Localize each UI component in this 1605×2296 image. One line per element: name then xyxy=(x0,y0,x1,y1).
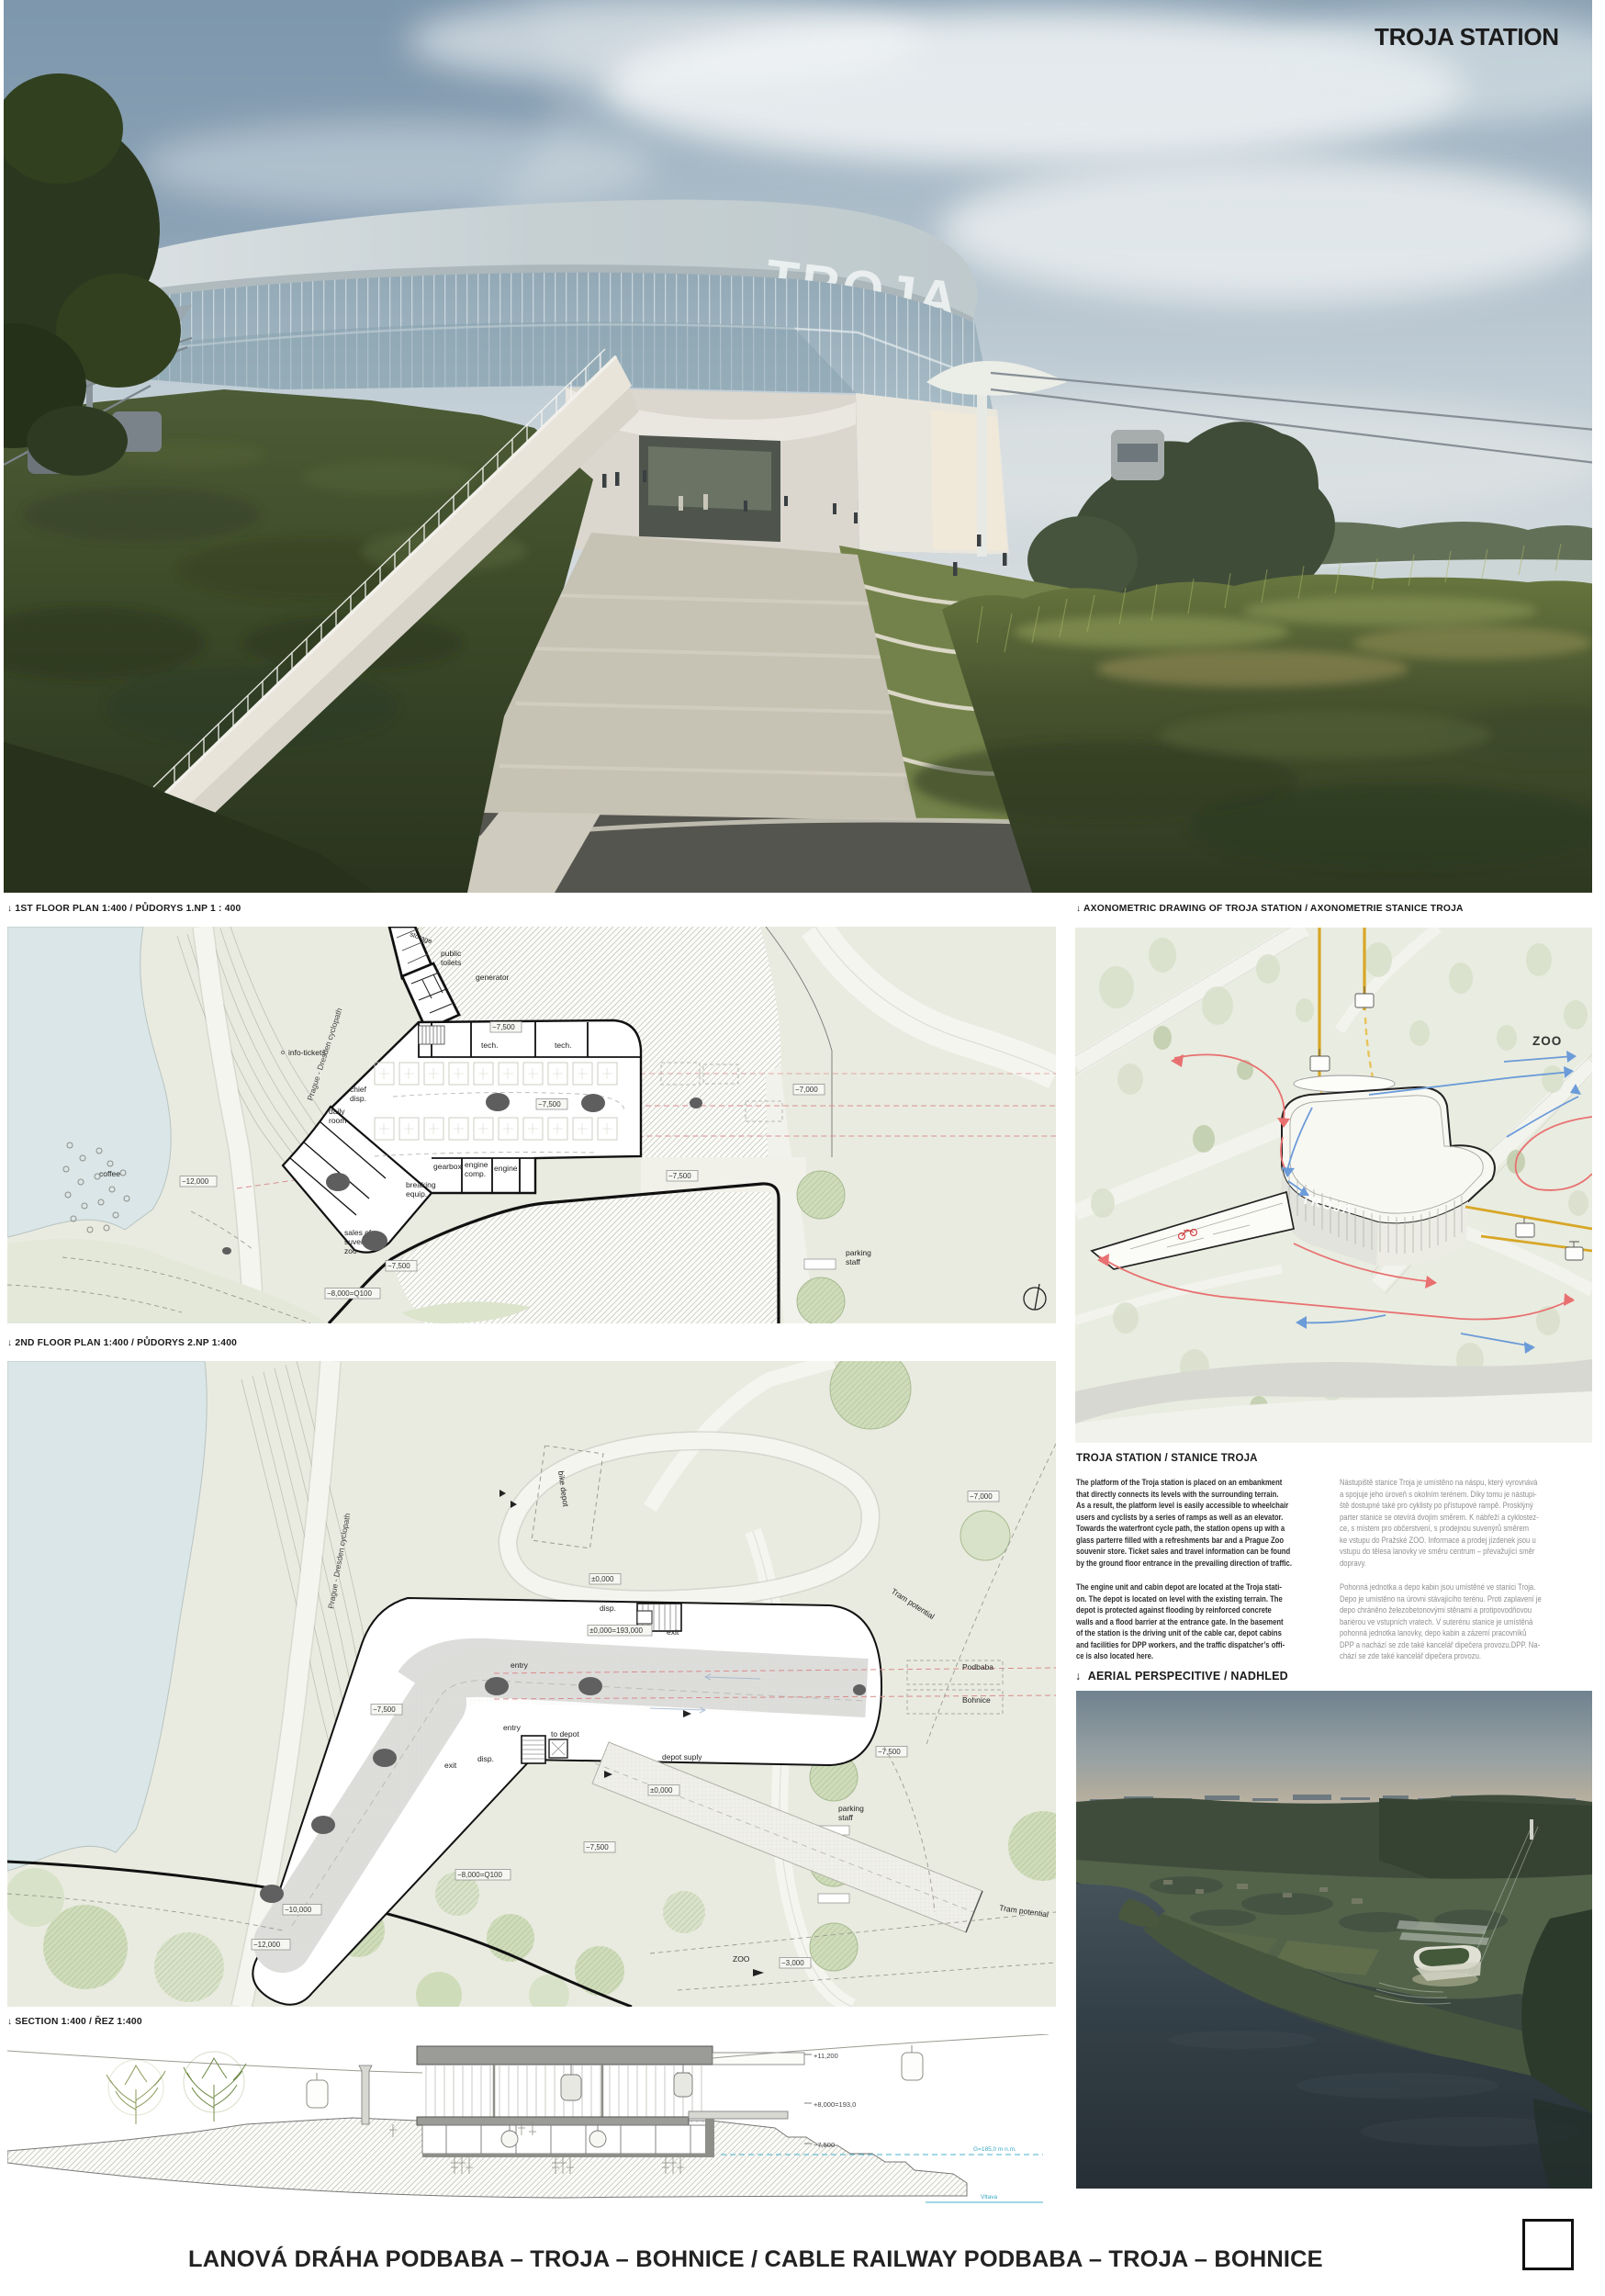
svg-text:±0,000: ±0,000 xyxy=(650,1786,673,1795)
svg-text:staff: staff xyxy=(838,1813,854,1822)
svg-text:+8,000=193,0: +8,000=193,0 xyxy=(814,2100,856,2109)
svg-text:−12,000: −12,000 xyxy=(253,1941,281,1949)
svg-text:−7,500: −7,500 xyxy=(878,1748,901,1756)
svg-text:−7,500: −7,500 xyxy=(492,1023,515,1031)
svg-text:tech.: tech. xyxy=(555,1041,571,1050)
svg-text:−10,000: −10,000 xyxy=(285,1906,312,1914)
svg-text:staff: staff xyxy=(846,1257,861,1266)
svg-text:gearbox: gearbox xyxy=(433,1162,462,1171)
svg-text:room: room xyxy=(329,1116,346,1125)
svg-text:to depot: to depot xyxy=(551,1729,579,1739)
svg-text:Vltava: Vltava xyxy=(981,2194,997,2200)
svg-text:engine: engine xyxy=(494,1164,518,1173)
svg-text:−7,500: −7,500 xyxy=(373,1705,396,1714)
svg-text:info-tickets: info-tickets xyxy=(288,1048,326,1057)
svg-text:+11,200: +11,200 xyxy=(814,2052,838,2060)
svg-text:−3,000: −3,000 xyxy=(781,1959,804,1967)
svg-text:disp.: disp. xyxy=(477,1754,494,1763)
svg-text:public: public xyxy=(441,949,462,958)
svg-text:toilets: toilets xyxy=(441,958,461,967)
svg-text:entry: entry xyxy=(511,1660,529,1670)
svg-text:−8,000=Q100: −8,000=Q100 xyxy=(327,1289,372,1298)
svg-text:ZOO: ZOO xyxy=(733,1954,750,1964)
svg-text:Podbaba: Podbaba xyxy=(962,1662,993,1671)
svg-text:−7,500: −7,500 xyxy=(586,1843,609,1851)
svg-text:±0,000: ±0,000 xyxy=(591,1575,614,1583)
svg-text:−7,500: −7,500 xyxy=(387,1262,410,1270)
svg-text:Bohnice: Bohnice xyxy=(962,1695,991,1705)
svg-text:exit: exit xyxy=(444,1761,457,1770)
svg-text:engine: engine xyxy=(465,1160,488,1169)
svg-text:−7,000: −7,000 xyxy=(795,1086,818,1094)
svg-text:chief: chief xyxy=(350,1085,367,1094)
svg-text:−7,500: −7,500 xyxy=(668,1172,691,1180)
svg-text:depot suply: depot suply xyxy=(662,1752,702,1761)
svg-text:entry: entry xyxy=(503,1723,522,1732)
svg-text:tech.: tech. xyxy=(481,1041,498,1050)
svg-text:breaking: breaking xyxy=(406,1180,436,1189)
svg-text:generator: generator xyxy=(476,973,510,982)
svg-text:coffee: coffee xyxy=(99,1169,120,1178)
svg-text:ZOO: ZOO xyxy=(1532,1034,1562,1048)
svg-text:−12,000: −12,000 xyxy=(182,1177,209,1186)
svg-text:parking: parking xyxy=(838,1804,864,1813)
svg-text:parking: parking xyxy=(846,1248,871,1257)
svg-text:−8,000=Q100: −8,000=Q100 xyxy=(457,1871,502,1879)
svg-text:±0,000=193,000: ±0,000=193,000 xyxy=(589,1626,644,1635)
svg-text:disp.: disp. xyxy=(600,1604,616,1613)
svg-text:exit: exit xyxy=(667,1627,679,1637)
svg-text:disp.: disp. xyxy=(350,1094,366,1103)
svg-text:−7,500: −7,500 xyxy=(814,2141,835,2149)
svg-text:G=185,0 m n.m.: G=185,0 m n.m. xyxy=(973,2146,1016,2153)
svg-text:−7,500: −7,500 xyxy=(538,1100,561,1109)
svg-text:−7,000: −7,000 xyxy=(970,1492,993,1501)
svg-text:zoo: zoo xyxy=(344,1246,357,1255)
svg-text:equip.: equip. xyxy=(406,1189,427,1199)
svg-text:daily: daily xyxy=(329,1107,345,1116)
svg-text:comp.: comp. xyxy=(465,1169,486,1178)
